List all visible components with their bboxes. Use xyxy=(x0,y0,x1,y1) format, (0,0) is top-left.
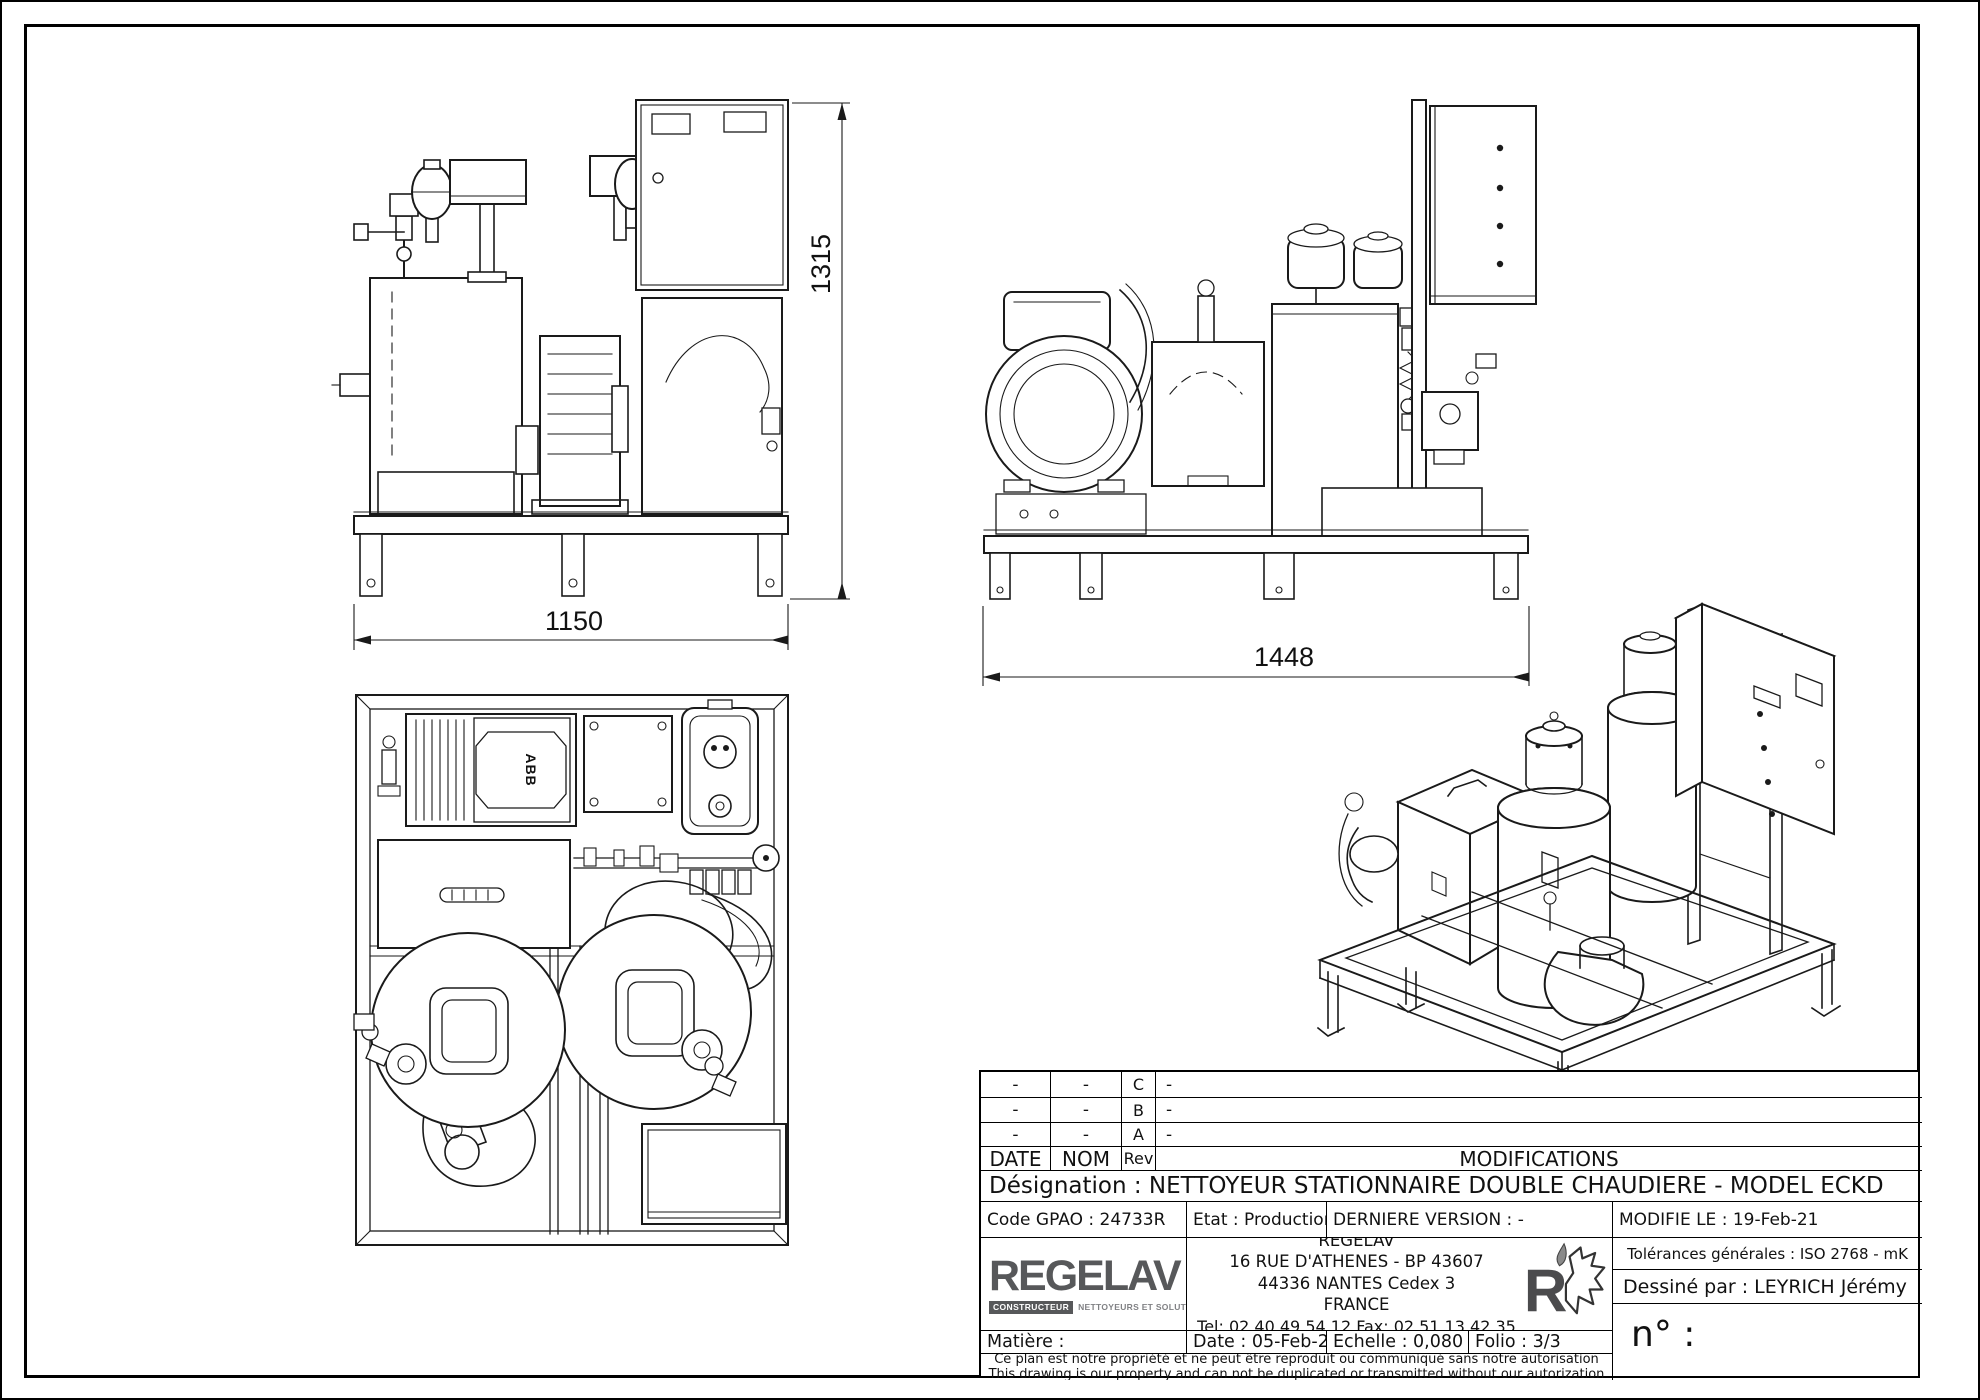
address-line-1: REGELAV xyxy=(1318,1238,1394,1251)
rev-header-date: DATE xyxy=(981,1147,1051,1171)
property-disclaimer: Ce plan est notre propriété et ne peut ê… xyxy=(981,1354,1613,1380)
rev-row-b-modification: - xyxy=(1156,1098,1922,1123)
tel-fax-line: Tel: 02.40.49.54.12 Fax: 02.51.13.42.35 xyxy=(1197,1317,1516,1331)
disclaimer-english: This drawing is our property and can not… xyxy=(989,1367,1605,1380)
rev-row-a-nom: - xyxy=(1051,1123,1122,1147)
motor-brand-label: ABB xyxy=(523,753,539,786)
rev-header-nom: NOM xyxy=(1051,1147,1122,1171)
company-address: REGELAV 16 RUE D'ATHENES - BP 43607 4433… xyxy=(1187,1238,1613,1331)
dim-front-height: 1315 xyxy=(806,234,836,294)
disclaimer-french: Ce plan est notre propriété et ne peut ê… xyxy=(994,1354,1599,1367)
drawing-sheet: 1315 1150 xyxy=(0,0,1980,1400)
rev-row-b-date: - xyxy=(981,1098,1051,1123)
company-logo-badge: CONSTRUCTEUR xyxy=(989,1301,1073,1314)
rev-header-rev: Rev xyxy=(1122,1147,1156,1171)
company-logo-text: REGELAV xyxy=(989,1255,1180,1298)
rev-row-b-nom: - xyxy=(1051,1098,1122,1123)
rev-row-a-rev: A xyxy=(1122,1123,1156,1147)
folio-field: Folio : 3/3 xyxy=(1469,1331,1613,1354)
dessine-par-field: Dessiné par : LEYRICH Jérémy xyxy=(1613,1270,1922,1304)
front-view-drawing xyxy=(332,100,788,596)
designation-field: Désignation : NETTOYEUR STATIONNAIRE DOU… xyxy=(981,1171,1922,1202)
isometric-view-drawing xyxy=(1318,604,1840,1128)
etat-field: Etat : Production xyxy=(1187,1202,1327,1238)
derniere-version-field: DERNIERE VERSION : - xyxy=(1327,1202,1613,1238)
modifie-le-field: MODIFIE LE : 19-Feb-21 xyxy=(1613,1202,1922,1238)
title-block: - - C - - - B - - - A - DATE NOM Rev MOD… xyxy=(979,1070,1920,1378)
dim-front-width: 1150 xyxy=(545,606,603,636)
address-line-2: 16 RUE D'ATHENES - BP 43607 xyxy=(1229,1251,1483,1272)
rev-row-c-date: - xyxy=(981,1072,1051,1098)
rev-row-b-rev: B xyxy=(1122,1098,1156,1123)
company-logo-tagline: NETTOYEURS ET SOLUTIONS HAUTE PRESSION xyxy=(1078,1302,1187,1312)
company-logo: REGELAV CONSTRUCTEUR NETTOYEURS ET SOLUT… xyxy=(981,1238,1187,1331)
rev-row-a-modification: - xyxy=(1156,1123,1922,1147)
side-view-dimensions: 1448 xyxy=(983,606,1529,686)
echelle-field: Echelle : 0,080 xyxy=(1327,1331,1469,1354)
side-view-drawing xyxy=(984,100,1536,599)
rev-row-a-date: - xyxy=(981,1123,1051,1147)
top-view-drawing xyxy=(354,695,788,1245)
matiere-field: Matière : xyxy=(981,1331,1187,1354)
tolerances-field: Tolérances générales : ISO 2768 - mK xyxy=(1613,1238,1922,1270)
rev-row-c-nom: - xyxy=(1051,1072,1122,1098)
dim-side-width: 1448 xyxy=(1254,642,1314,672)
rev-row-c-rev: C xyxy=(1122,1072,1156,1098)
date-field: Date : 05-Feb-21 xyxy=(1187,1331,1327,1354)
rev-header-modifications: MODIFICATIONS xyxy=(1156,1147,1922,1171)
rhino-logo-icon: R xyxy=(1522,1242,1608,1326)
address-line-3: 44336 NANTES Cedex 3 xyxy=(1258,1273,1455,1294)
address-line-4: FRANCE xyxy=(1324,1294,1390,1315)
svg-text:R: R xyxy=(1524,1256,1568,1324)
rev-row-c-modification: - xyxy=(1156,1072,1922,1098)
code-gpao-field: Code GPAO : 24733R xyxy=(981,1202,1187,1238)
numero-field: n° : xyxy=(1613,1304,1922,1380)
